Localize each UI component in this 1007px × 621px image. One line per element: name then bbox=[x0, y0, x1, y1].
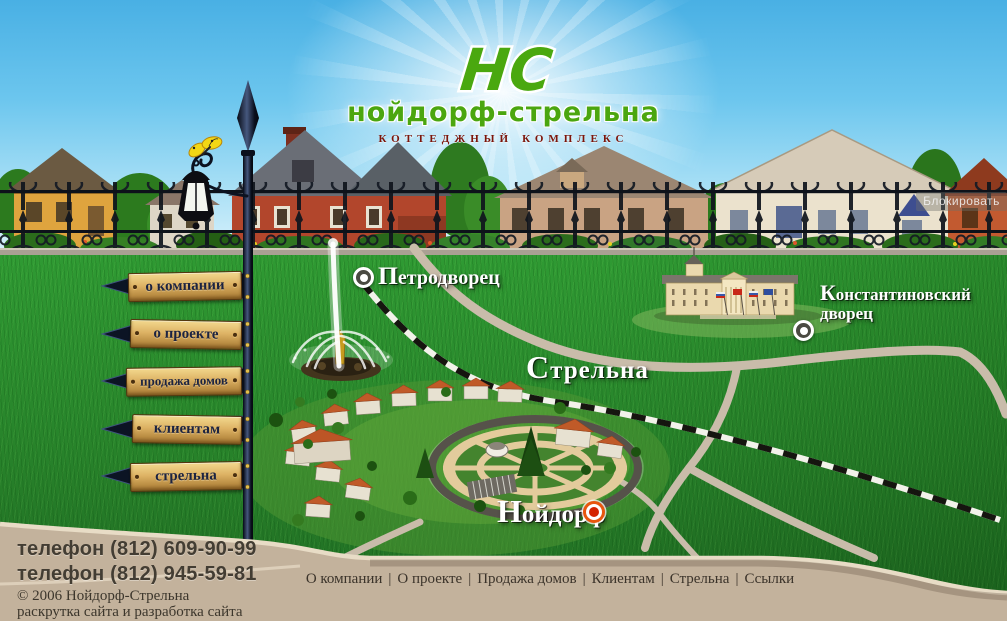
logo-title: нойдорф-стрельна bbox=[0, 97, 1007, 128]
page: НС нойдорф-стрельна коттеджный комплекс bbox=[0, 0, 1007, 621]
nav-separator: | bbox=[583, 571, 586, 587]
phone-number-2: телефон (812) 945-59-81 bbox=[17, 563, 257, 586]
nav-separator: | bbox=[661, 571, 664, 587]
menu-item-label: о компании bbox=[145, 277, 225, 295]
site-promotion-link[interactable]: раскрутка сайта bbox=[17, 604, 119, 620]
konstantinovsky-label: Константиновский дворец bbox=[820, 284, 970, 323]
site-logo: НС нойдорф-стрельна коттеджный комплекс bbox=[0, 0, 1007, 160]
nav-link-links[interactable]: Ссылки bbox=[744, 571, 794, 587]
credits-separator: и bbox=[119, 604, 135, 620]
nav-link-about-company[interactable]: О компании bbox=[306, 571, 383, 587]
menu-item-label: о проекте bbox=[153, 325, 218, 342]
menu-item-label: продажа домов bbox=[140, 372, 228, 388]
copyright-text: © 2006 Нойдорф-Стрельна bbox=[17, 588, 189, 605]
konstantinovsky-marker bbox=[793, 320, 814, 341]
nav-separator: | bbox=[388, 571, 391, 587]
petrodvorets-label: Петродворец bbox=[378, 261, 500, 291]
nav-link-house-sales[interactable]: Продажа домов bbox=[477, 571, 576, 587]
phone-number-1: телефон (812) 609-90-99 bbox=[17, 538, 257, 561]
logo-monogram-text: НС bbox=[457, 36, 556, 104]
petrodvorets-marker bbox=[353, 267, 374, 288]
nav-separator: | bbox=[468, 571, 471, 587]
logo-monogram-icon: НС bbox=[395, 26, 615, 106]
logo-subtitle: коттеджный комплекс bbox=[0, 129, 1007, 147]
credits-line: раскрутка сайта и разработка сайта bbox=[17, 604, 243, 621]
nav-link-strelna[interactable]: Стрельна bbox=[670, 571, 730, 587]
bottom-navigation: О компании|О проекте|Продажа домов|Клиен… bbox=[265, 571, 835, 588]
konstantinovsky-label-line2: дворец bbox=[820, 304, 970, 323]
menu-item-label: клиентам bbox=[154, 420, 221, 437]
menu-item-label: стрельна bbox=[155, 467, 217, 484]
site-development-link[interactable]: разработка сайта bbox=[134, 604, 242, 620]
nav-separator: | bbox=[735, 571, 738, 587]
menu-item-strelna[interactable]: стрельна bbox=[130, 461, 242, 492]
block-overlay-button[interactable]: Блокировать bbox=[916, 192, 1007, 211]
neudorf-marker bbox=[583, 501, 605, 523]
menu-item-about-company[interactable]: о компании bbox=[128, 271, 243, 302]
strelna-label: Стрельна bbox=[526, 349, 649, 386]
menu-item-about-project[interactable]: о проекте bbox=[130, 319, 242, 350]
menu-item-clients[interactable]: клиентам bbox=[132, 414, 242, 445]
nav-link-clients[interactable]: Клиентам bbox=[592, 571, 655, 587]
konstantinovsky-label-line1: Константиновский bbox=[820, 284, 970, 304]
menu-item-house-sales[interactable]: продажа домов bbox=[126, 366, 242, 397]
nav-link-about-project[interactable]: О проекте bbox=[397, 571, 462, 587]
